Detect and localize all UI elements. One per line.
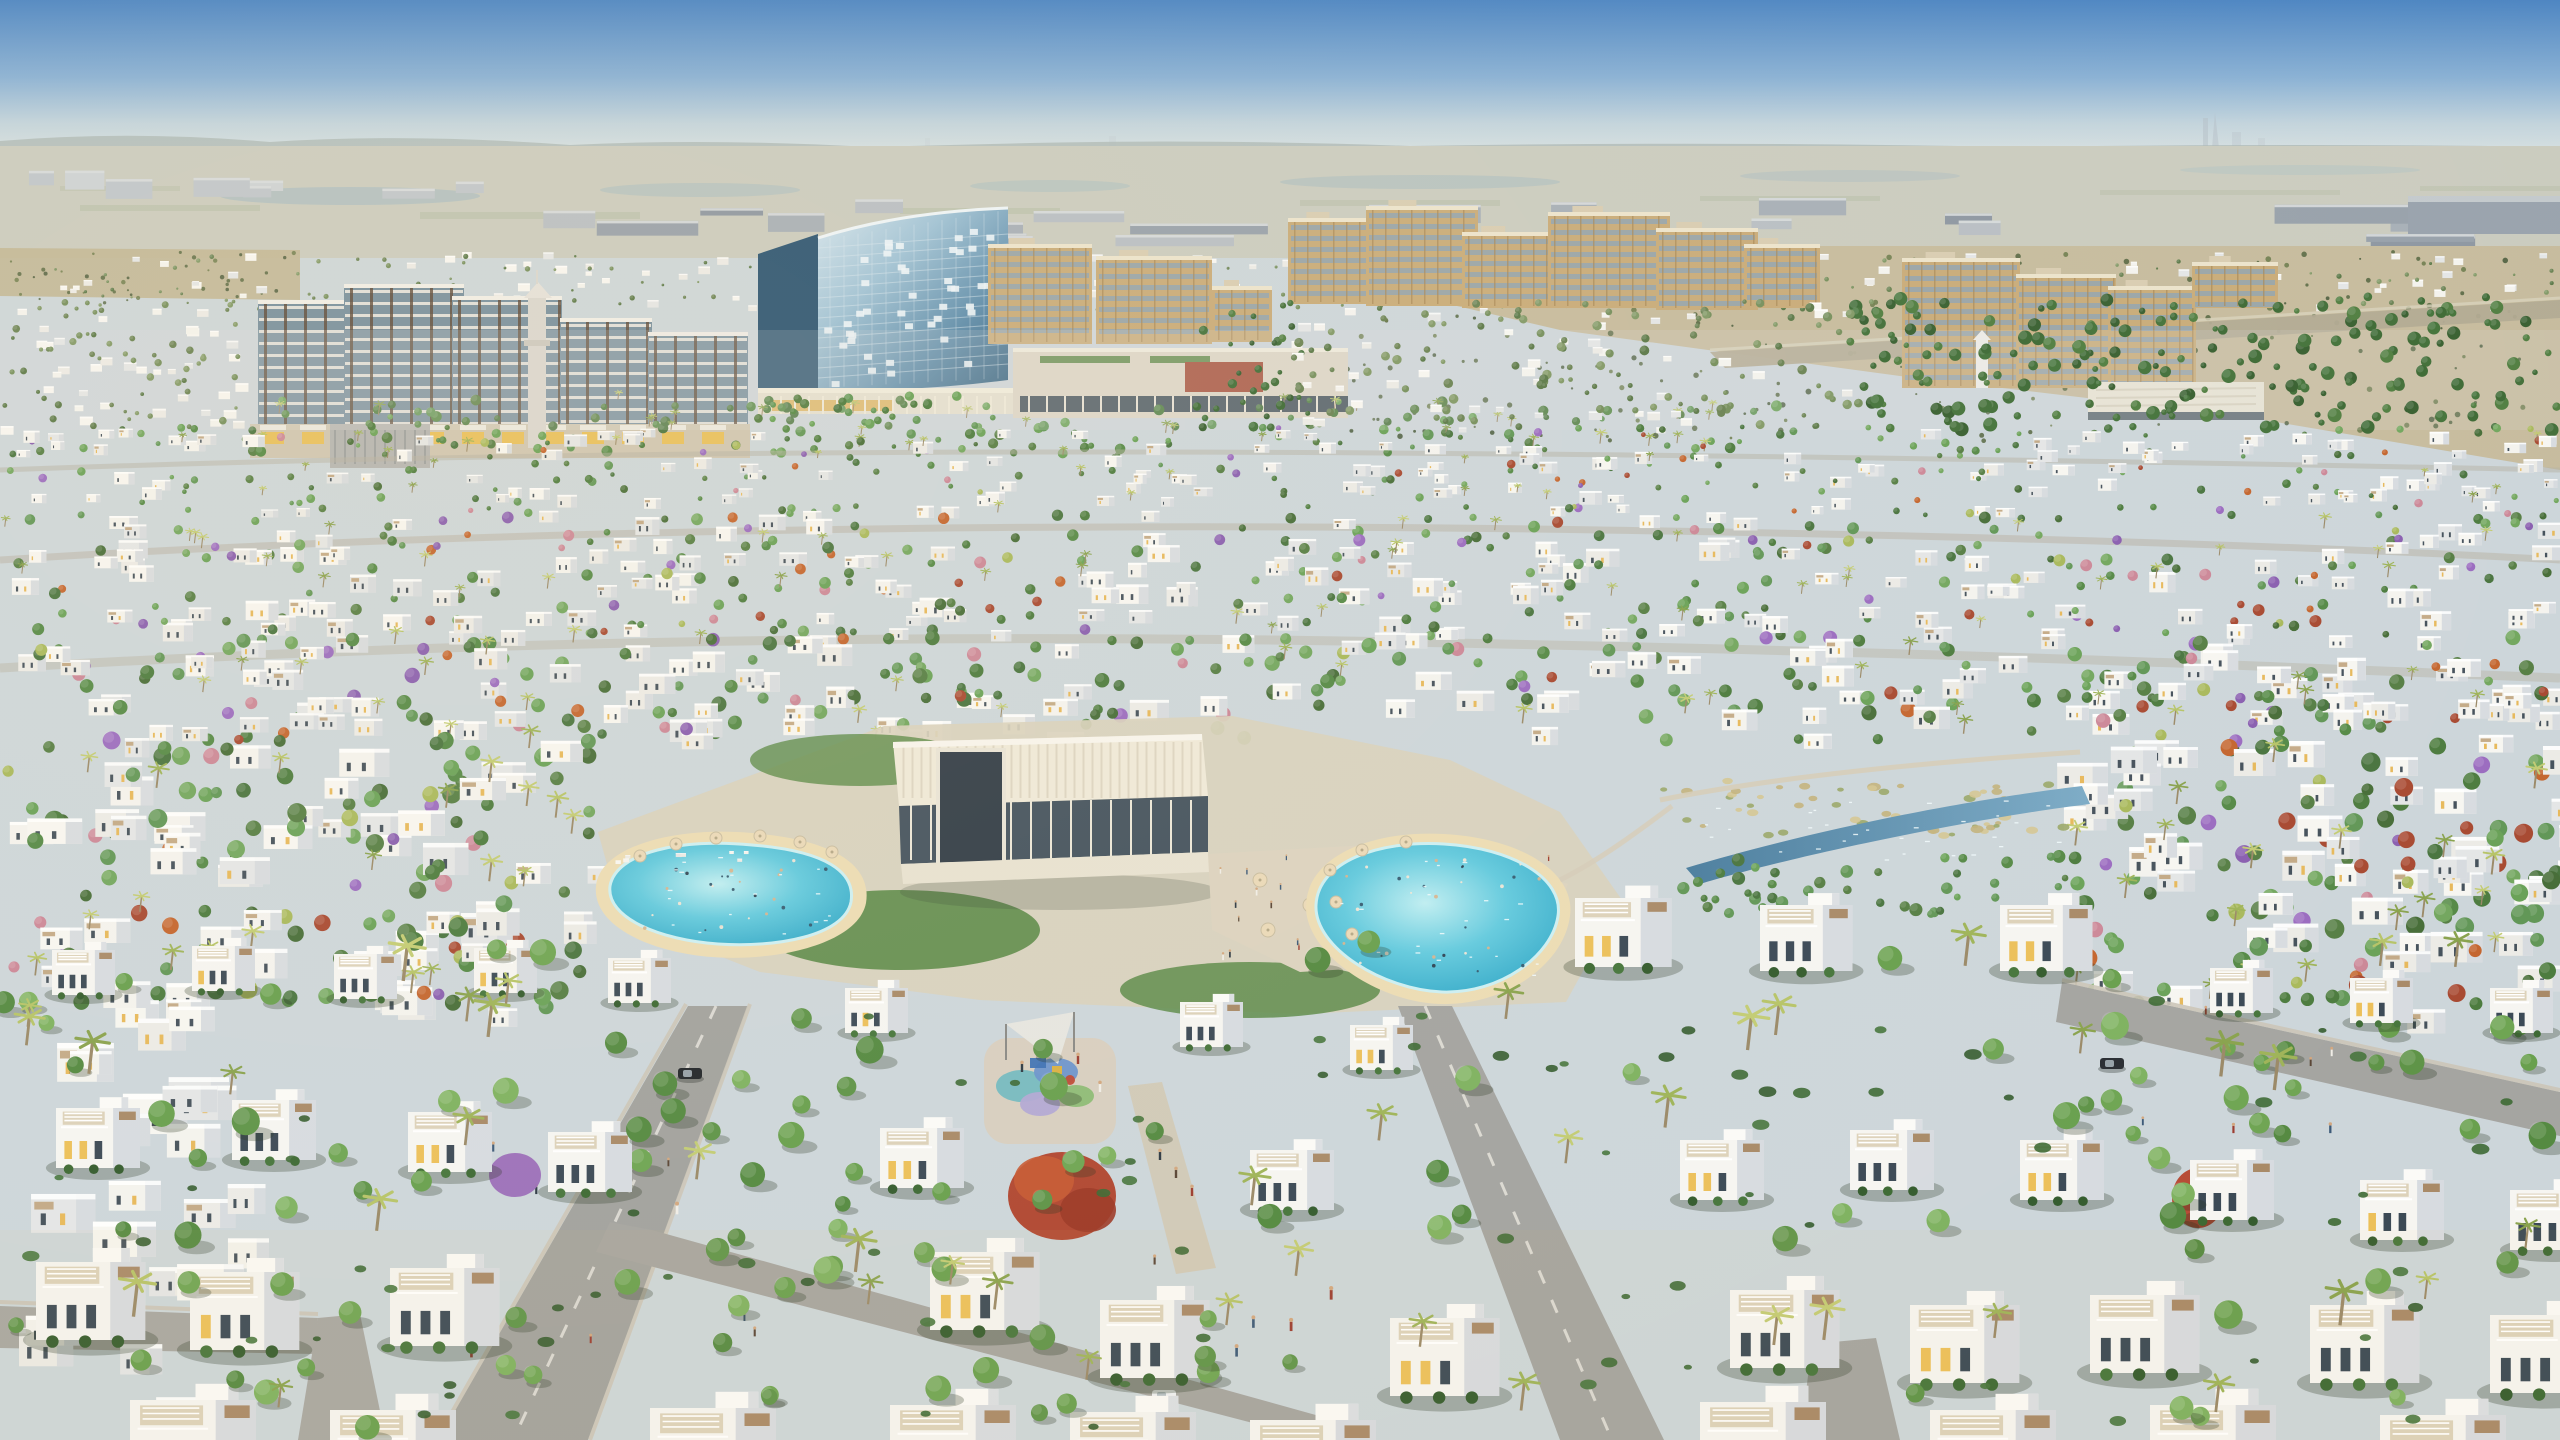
aerial-community-render xyxy=(0,0,2560,1440)
scene-svg xyxy=(0,0,2560,1440)
atmosphere-layer xyxy=(0,0,2560,1440)
